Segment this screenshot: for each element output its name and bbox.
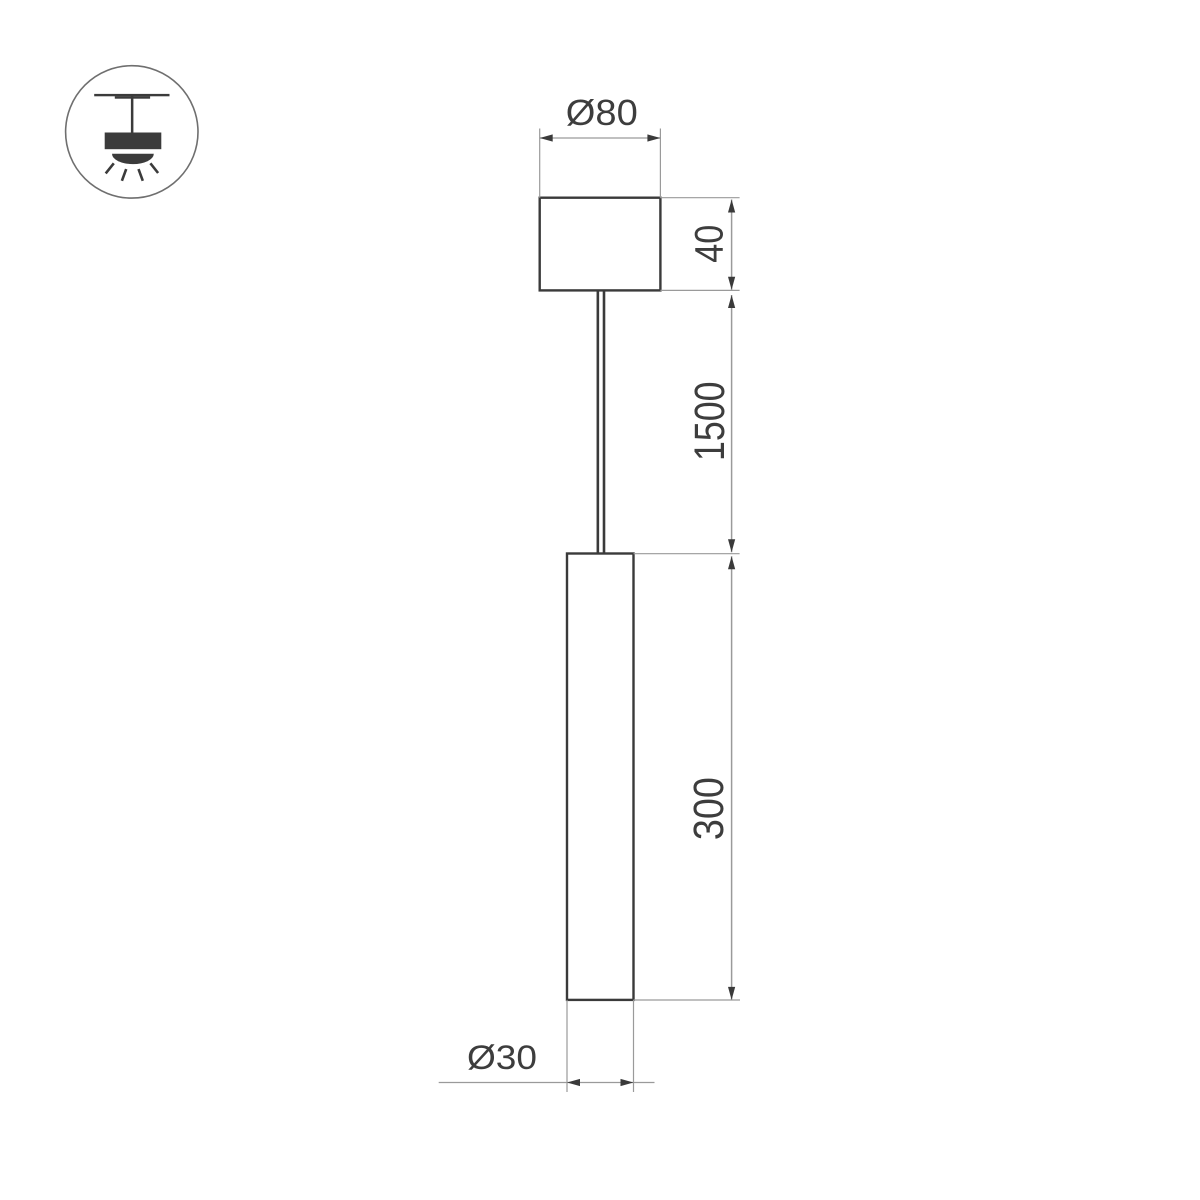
svg-text:300: 300	[686, 777, 733, 840]
svg-text:Ø30: Ø30	[467, 1039, 537, 1077]
svg-text:Ø80: Ø80	[566, 92, 638, 133]
svg-text:40: 40	[687, 225, 731, 263]
svg-text:1500: 1500	[687, 382, 734, 462]
